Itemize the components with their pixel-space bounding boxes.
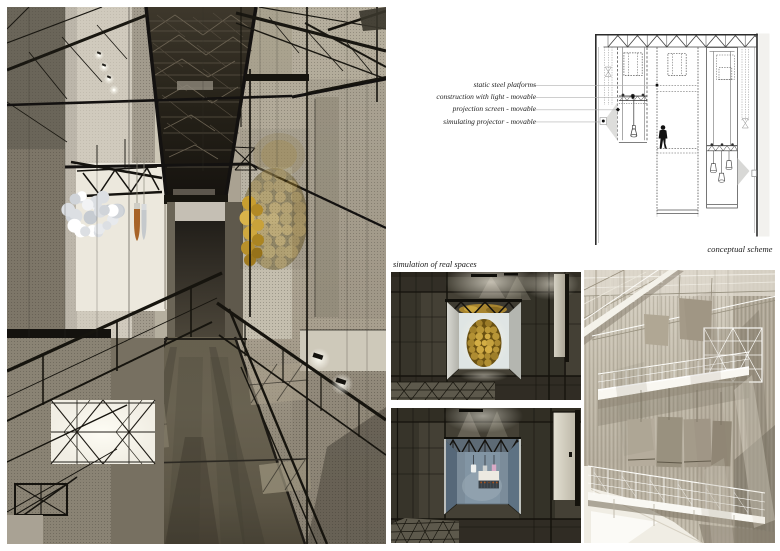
svg-text:conceptual scheme: conceptual scheme	[707, 244, 772, 254]
